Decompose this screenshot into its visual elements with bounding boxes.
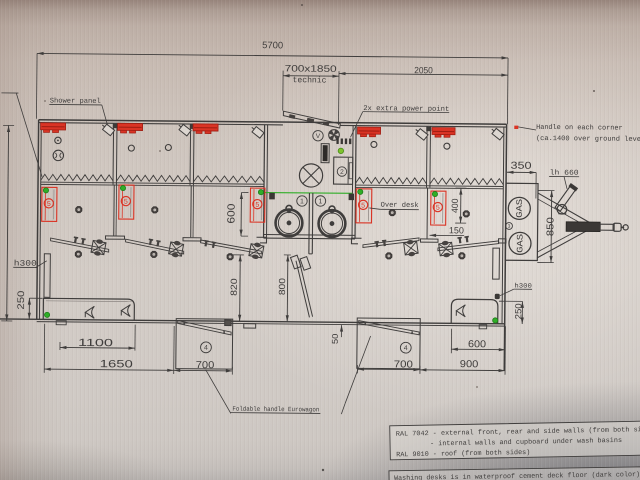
svg-text:(ca.1400 over ground leve: (ca.1400 over ground leve [536,135,640,144]
svg-text:600: 600 [468,339,487,350]
svg-text:Over desk: Over desk [381,202,419,210]
svg-text:Handle on each corner: Handle on each corner [536,124,623,133]
svg-text:800: 800 [277,278,287,295]
svg-text:250: 250 [16,291,27,310]
svg-text:700: 700 [196,360,215,371]
svg-text:820: 820 [229,278,239,296]
svg-text:5: 5 [124,199,128,206]
svg-text:5: 5 [436,205,440,212]
svg-text:1: 1 [300,198,304,205]
svg-text:5: 5 [361,202,365,209]
svg-text:250: 250 [513,303,523,319]
svg-text:V: V [316,133,321,140]
svg-text:h300: h300 [514,283,532,290]
svg-text:1: 1 [318,198,322,205]
svg-text:5: 5 [47,201,51,208]
svg-text:2: 2 [340,169,344,176]
svg-text:5700: 5700 [262,40,283,51]
svg-text:600: 600 [225,203,237,223]
svg-text:GAS: GAS [515,234,525,253]
svg-text:150: 150 [449,225,464,235]
svg-text:850: 850 [545,217,556,237]
svg-text:50: 50 [330,333,340,344]
svg-text:4: 4 [204,345,208,352]
svg-text:2160: 2160 [0,165,1,184]
svg-text:700: 700 [394,359,414,370]
svg-text:900: 900 [460,359,479,370]
svg-text:1650: 1650 [100,358,133,370]
svg-text:GAS: GAS [515,199,525,218]
svg-text:technic: technic [292,75,326,85]
svg-text:2050: 2050 [414,65,433,75]
svg-text:1100: 1100 [78,337,113,349]
svg-text:350: 350 [510,161,532,172]
svg-text:4: 4 [404,345,408,352]
svg-text:3: 3 [508,224,511,230]
svg-text:400: 400 [450,198,460,213]
svg-text:Foldable handle Eurowagon: Foldable handle Eurowagon [232,406,319,414]
svg-text:700x1850: 700x1850 [285,63,337,73]
svg-text:5: 5 [255,202,259,209]
